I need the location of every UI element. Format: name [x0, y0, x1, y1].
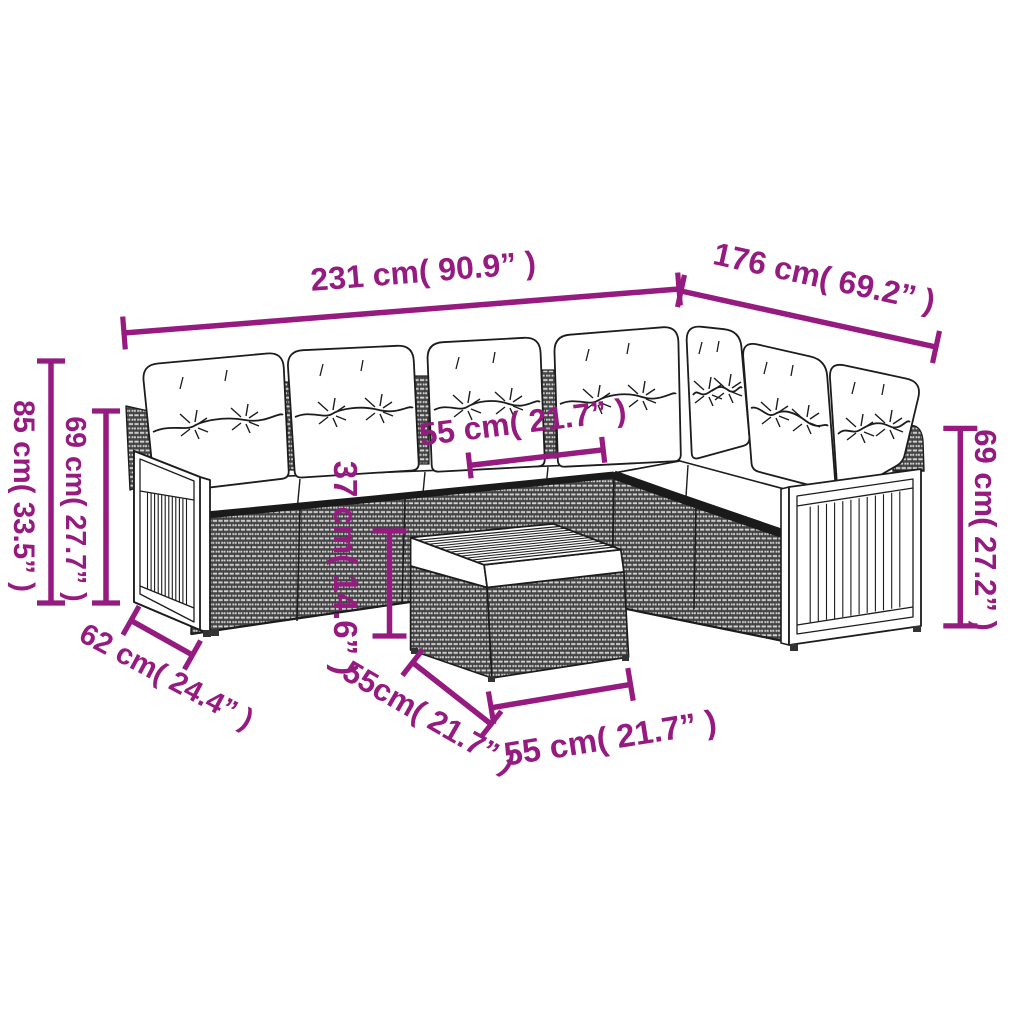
svg-text:85 cm( 33.5” ): 85 cm( 33.5” ): [7, 400, 40, 592]
svg-text:69 cm( 27.2” ): 69 cm( 27.2” ): [968, 429, 1003, 631]
svg-text:69 cm( 27.7” ): 69 cm( 27.7” ): [59, 416, 91, 601]
svg-text:37 cm( 14.6” ): 37 cm( 14.6” ): [327, 461, 364, 676]
